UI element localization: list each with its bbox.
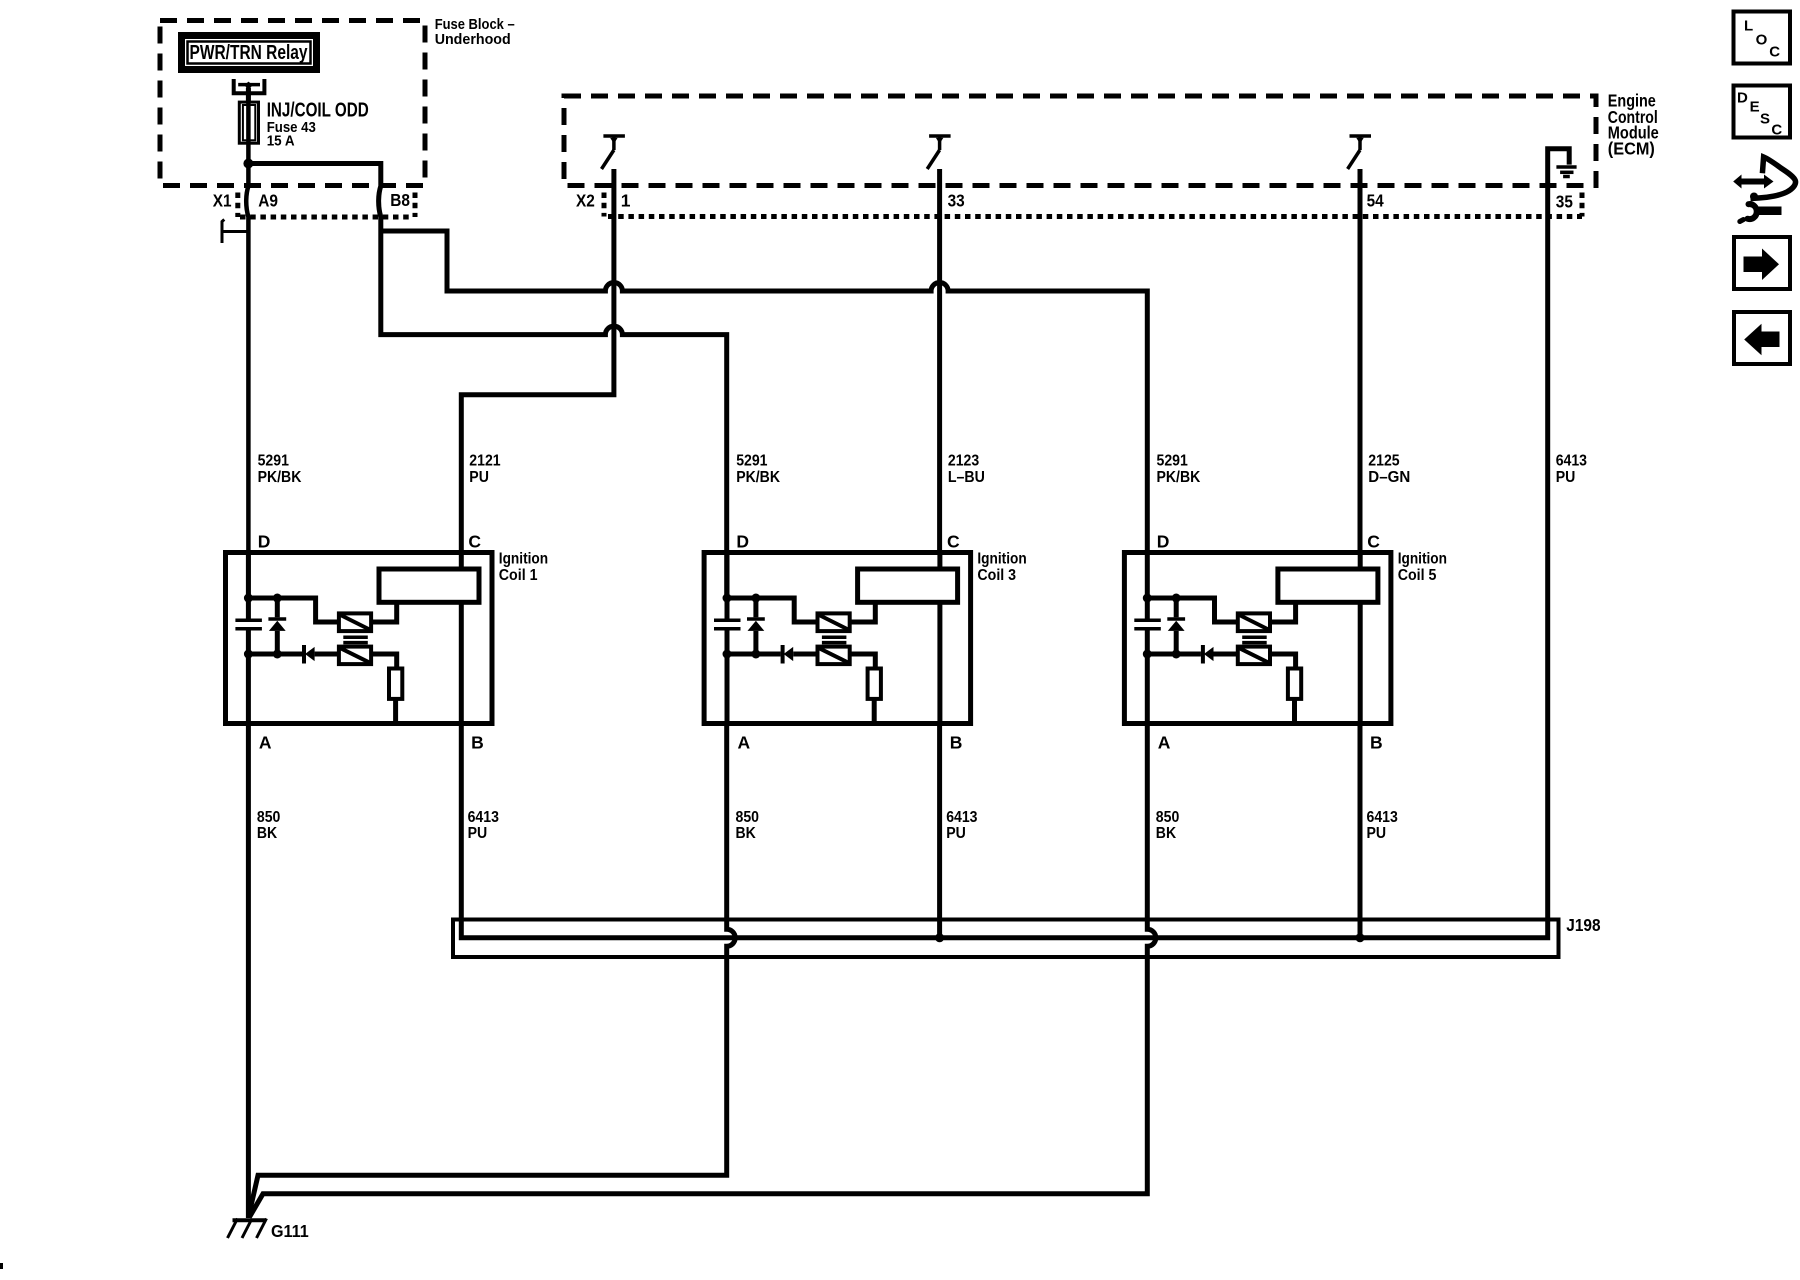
svg-text:Ignition: Ignition xyxy=(499,551,548,568)
svg-text:BK: BK xyxy=(736,825,757,842)
svg-text:(ECM): (ECM) xyxy=(1608,138,1655,158)
svg-text:S: S xyxy=(1760,111,1770,128)
svg-text:D: D xyxy=(1737,89,1748,106)
svg-text:B: B xyxy=(950,732,963,752)
svg-text:1: 1 xyxy=(621,191,631,211)
svg-text:PU: PU xyxy=(1367,825,1387,842)
svg-text:Coil 3: Coil 3 xyxy=(977,567,1016,584)
svg-text:PU: PU xyxy=(468,825,488,842)
svg-text:PWR/TRN Relay: PWR/TRN Relay xyxy=(190,42,309,64)
svg-text:D: D xyxy=(1157,532,1170,552)
svg-text:Coil 1: Coil 1 xyxy=(499,567,538,584)
svg-text:C: C xyxy=(1769,43,1780,60)
svg-text:X2: X2 xyxy=(576,191,595,211)
svg-text:D: D xyxy=(258,532,271,552)
svg-text:A9: A9 xyxy=(258,191,278,211)
svg-text:A: A xyxy=(738,732,751,752)
svg-text:E: E xyxy=(1750,99,1760,116)
svg-text:PK/BK: PK/BK xyxy=(736,469,780,486)
svg-text:B: B xyxy=(471,732,484,752)
svg-text:PU: PU xyxy=(1556,469,1576,486)
svg-text:B: B xyxy=(1370,732,1383,752)
svg-text:D–GN: D–GN xyxy=(1368,469,1410,486)
svg-text:6413: 6413 xyxy=(946,809,977,826)
svg-text:C: C xyxy=(1771,122,1782,139)
svg-text:C: C xyxy=(1367,532,1380,552)
svg-text:PU: PU xyxy=(469,469,489,486)
svg-text:A: A xyxy=(1158,732,1171,752)
svg-text:Ignition: Ignition xyxy=(977,551,1026,568)
svg-text:6413: 6413 xyxy=(1367,809,1398,826)
svg-text:B8: B8 xyxy=(390,190,410,210)
svg-text:C: C xyxy=(947,532,960,552)
svg-text:850: 850 xyxy=(736,809,760,826)
svg-text:BK: BK xyxy=(1156,825,1177,842)
svg-text:2125: 2125 xyxy=(1368,453,1399,470)
svg-text:6413: 6413 xyxy=(1556,453,1587,470)
svg-text:Coil 5: Coil 5 xyxy=(1398,567,1437,584)
svg-text:6413: 6413 xyxy=(468,809,499,826)
svg-text:PK/BK: PK/BK xyxy=(258,469,302,486)
svg-text:L: L xyxy=(1744,18,1753,35)
svg-text:2123: 2123 xyxy=(948,453,979,470)
svg-text:850: 850 xyxy=(257,809,281,826)
svg-text:D: D xyxy=(736,532,749,552)
svg-text:Underhood: Underhood xyxy=(435,31,511,48)
svg-text:15 A: 15 A xyxy=(267,133,295,150)
svg-text:C: C xyxy=(468,532,481,552)
svg-text:J198: J198 xyxy=(1566,915,1600,935)
svg-text:2121: 2121 xyxy=(469,453,500,470)
svg-text:L–BU: L–BU xyxy=(948,469,985,486)
svg-text:G111: G111 xyxy=(271,1221,309,1241)
svg-text:PU: PU xyxy=(946,825,966,842)
svg-text:850: 850 xyxy=(1156,809,1180,826)
svg-text:33: 33 xyxy=(948,191,965,211)
svg-text:5291: 5291 xyxy=(1157,453,1188,470)
svg-text:PK/BK: PK/BK xyxy=(1157,469,1201,486)
svg-text:X1: X1 xyxy=(213,191,232,211)
svg-text:A: A xyxy=(259,732,272,752)
svg-text:Ignition: Ignition xyxy=(1398,551,1447,568)
svg-text:O: O xyxy=(1756,31,1768,48)
svg-text:54: 54 xyxy=(1367,191,1384,211)
svg-text:5291: 5291 xyxy=(736,453,767,470)
svg-text:5291: 5291 xyxy=(258,453,289,470)
svg-text:BK: BK xyxy=(257,825,278,842)
svg-text:35: 35 xyxy=(1556,192,1573,212)
